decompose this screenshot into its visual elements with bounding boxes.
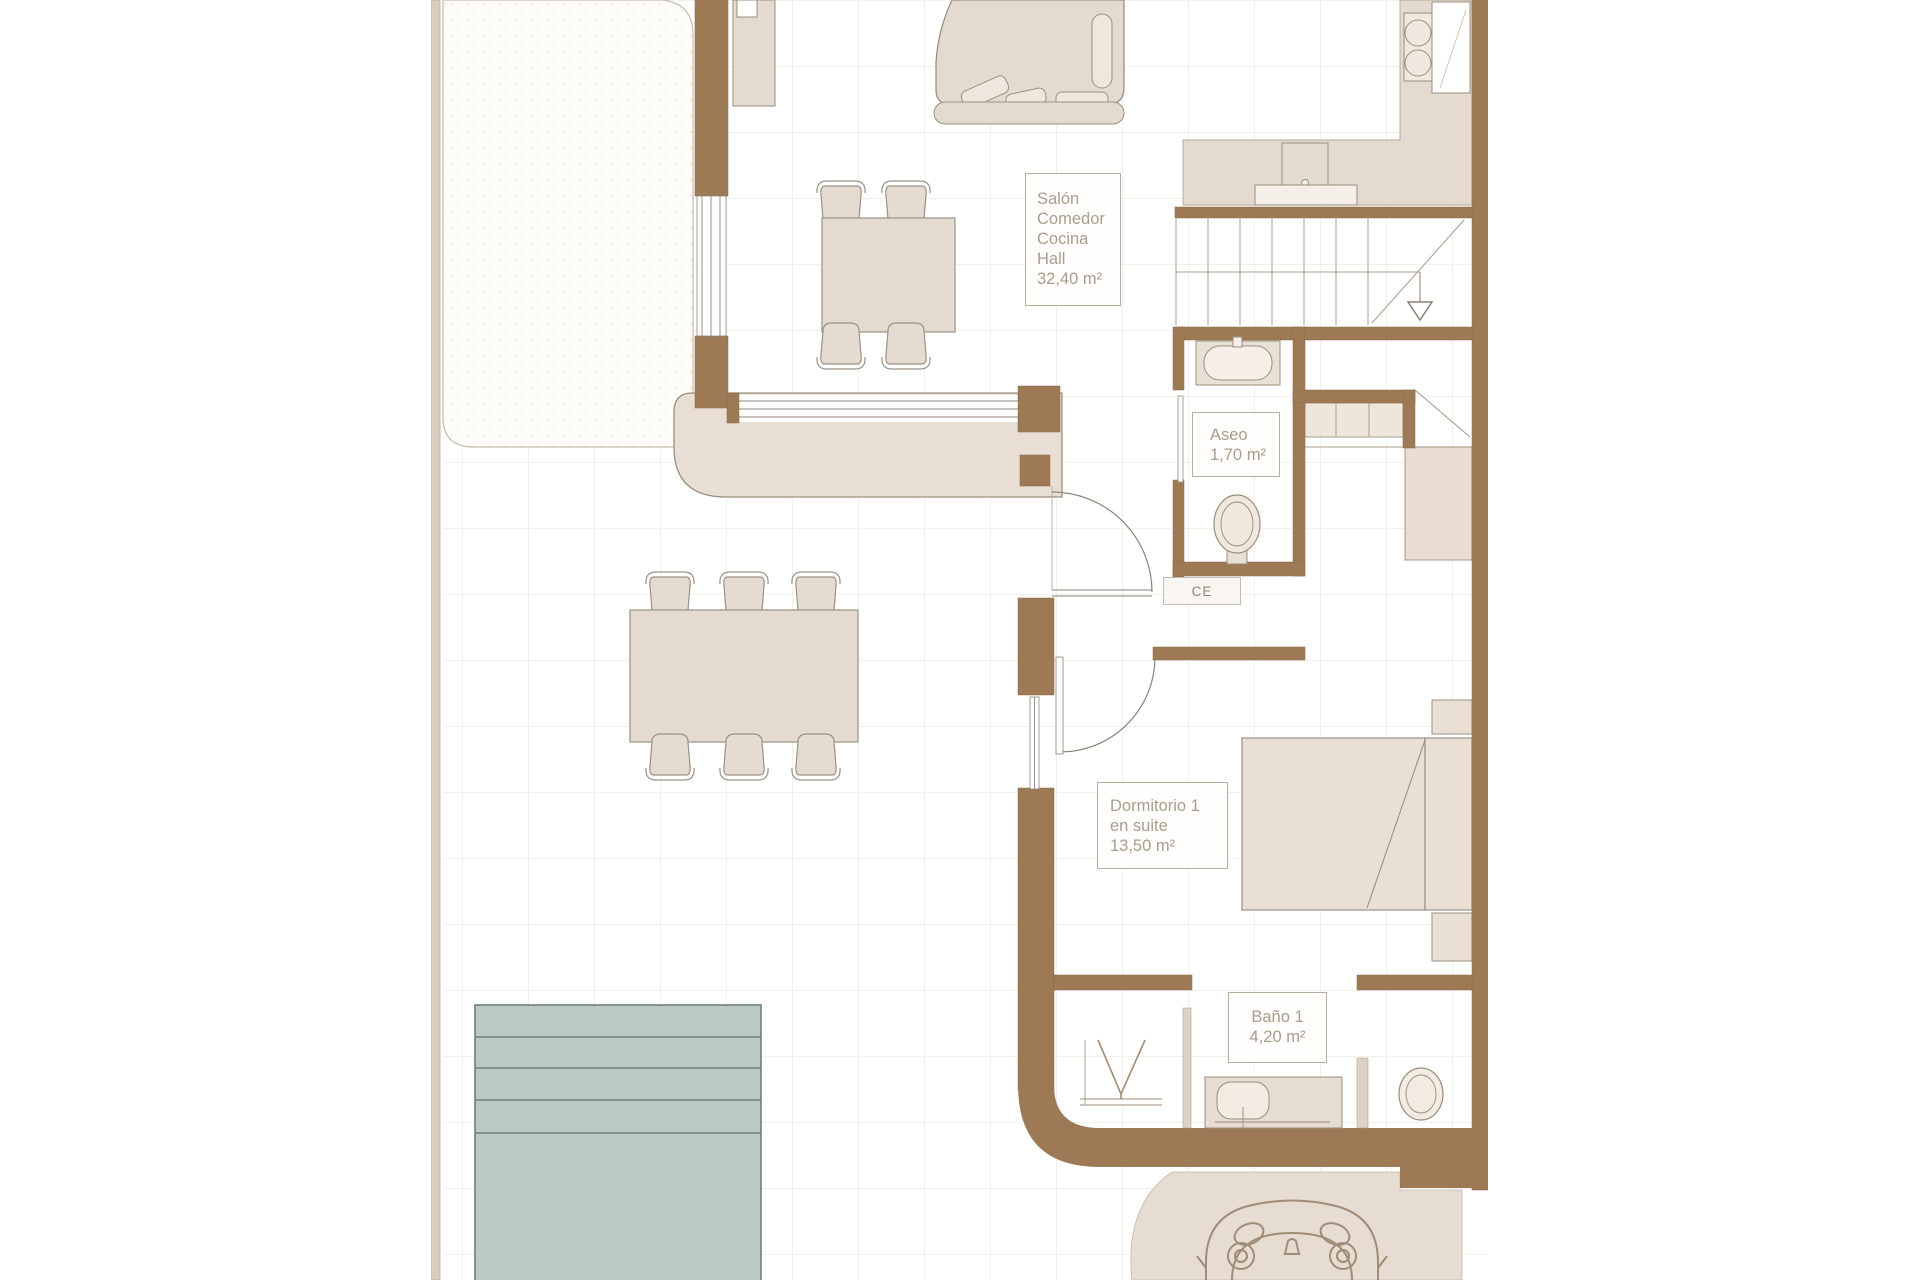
room-name-line: Baño 1 (1229, 1007, 1326, 1027)
floor-plan: Salón Comedor Cocina Hall 32,40 m² Aseo … (0, 0, 1920, 1280)
cooktop (1282, 143, 1328, 185)
room-name-line: Hall (1037, 249, 1120, 269)
room-area: 4,20 m² (1229, 1027, 1326, 1047)
left-margin (0, 0, 431, 1280)
door-aseo (1178, 396, 1183, 482)
nightstand (1432, 913, 1472, 961)
chair-icon (720, 734, 768, 780)
dining-table-outdoor (630, 610, 858, 742)
room-name-line: en suite (1110, 816, 1227, 836)
aseo-sink (1204, 346, 1272, 380)
room-name-line: Cocina (1037, 229, 1120, 249)
electrical-panel-label: CE (1163, 577, 1241, 605)
room-name-line: Comedor (1037, 209, 1120, 229)
counter-appliance (1255, 185, 1357, 205)
window-dormitorio (1030, 697, 1039, 789)
toilet-partition (1357, 1058, 1368, 1128)
chair-icon (792, 734, 840, 780)
right-margin (1488, 0, 1920, 1280)
room-label-dormitorio1: Dormitorio 1 en suite 13,50 m² (1097, 782, 1228, 869)
room-area: 32,40 m² (1037, 269, 1120, 289)
chair-icon (646, 734, 694, 780)
chair-icon (882, 323, 930, 369)
shower-partition (1183, 1008, 1191, 1128)
window-left-wall (697, 196, 726, 336)
room-label-bano1: Baño 1 4,20 m² (1228, 992, 1327, 1063)
chair-icon (817, 323, 865, 369)
pool (475, 1005, 761, 1280)
room-area: 1,70 m² (1210, 445, 1279, 465)
nightstand (1432, 700, 1472, 734)
terrace-area (443, 0, 693, 447)
floor-plan-drawing (0, 0, 1920, 1280)
room-name-line: Aseo (1210, 425, 1279, 445)
wardrobe (1405, 447, 1472, 560)
room-label-salon: Salón Comedor Cocina Hall 32,40 m² (1025, 173, 1121, 306)
room-label-aseo: Aseo 1,70 m² (1192, 412, 1280, 477)
room-area: 13,50 m² (1110, 836, 1227, 856)
plot-boundary (431, 0, 440, 1280)
dining-table-indoor (822, 218, 955, 332)
room-name-line: Salón (1037, 189, 1120, 209)
sideboard (733, 0, 775, 106)
room-name-line: Dormitorio 1 (1110, 796, 1227, 816)
sofa-icon (934, 0, 1124, 124)
dining-set-outdoor (630, 572, 858, 780)
